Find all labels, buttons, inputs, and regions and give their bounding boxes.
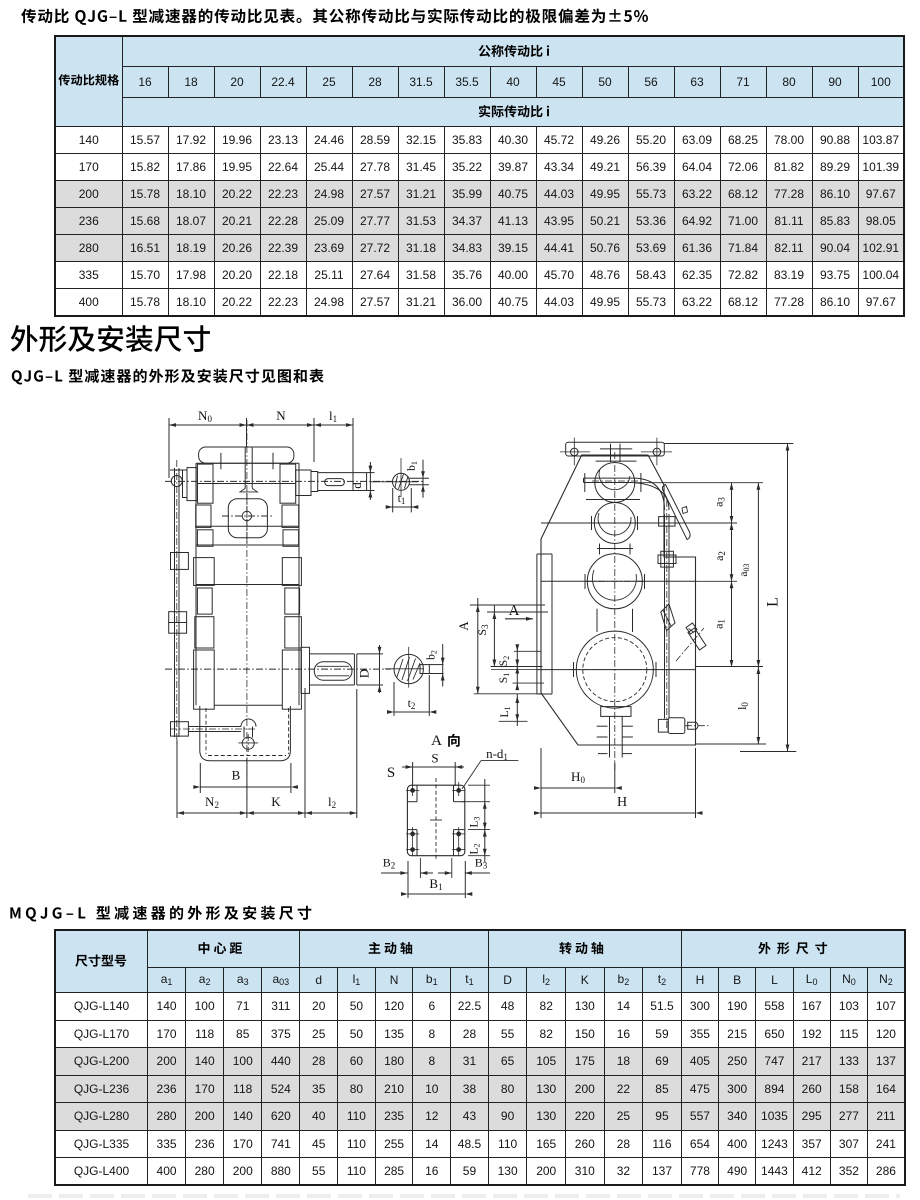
- svg-text:A: A: [431, 733, 442, 749]
